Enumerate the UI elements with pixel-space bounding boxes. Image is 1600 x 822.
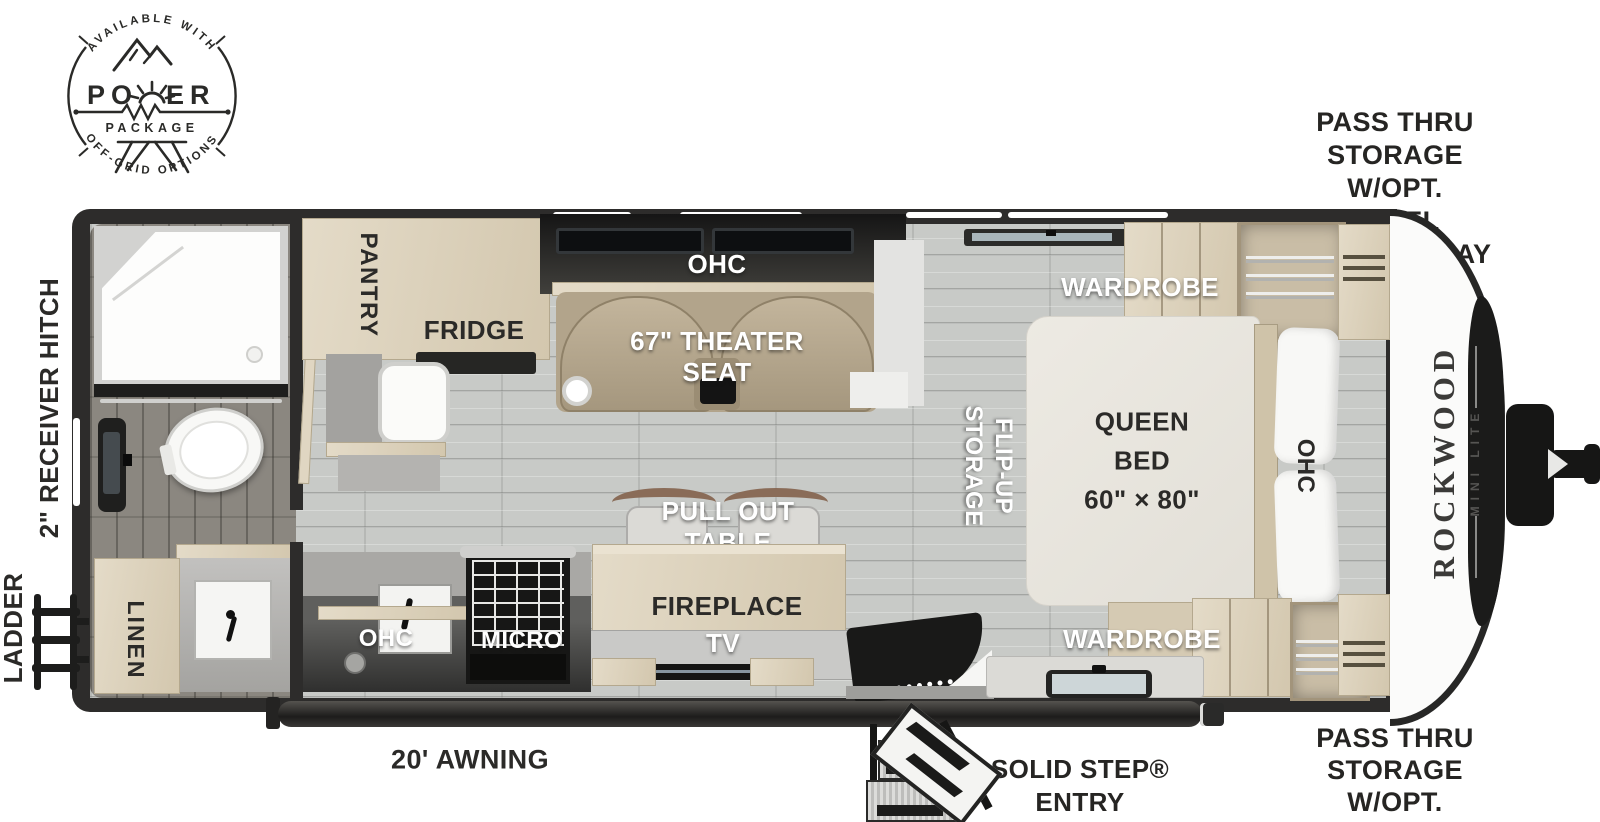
stove-handle (460, 546, 576, 558)
awning-label: 20' AWNING (391, 744, 549, 775)
power-package-badge: AVAILABLE WITH OFF-GRID OPTIONS PO ER PA… (52, 2, 252, 194)
closet-rod (1246, 292, 1334, 295)
note-line: STORAGE W/OPT. (1293, 754, 1498, 818)
queen-bed-label: QUEEN BED 60" × 80" (1084, 403, 1200, 520)
note-line: ENTRY (991, 786, 1169, 819)
tablet (1046, 670, 1152, 698)
bed-ohc-label: OHC (1291, 439, 1319, 494)
tablet-handle (1092, 665, 1106, 673)
door-sill (846, 686, 994, 699)
label-line: PULL OUT (662, 496, 795, 527)
pass-thru-compartment (1338, 224, 1390, 340)
note-line: PASS THRU (1293, 722, 1498, 754)
storage-slats (1343, 637, 1385, 667)
slideout-window (556, 228, 704, 254)
pass-thru-compartment (1338, 594, 1390, 696)
badge-arc-bottom-text: OFF-GRID OPTIONS (83, 132, 221, 177)
ladder-label: LADDER (0, 573, 29, 684)
tv-label: TV (706, 629, 740, 659)
bath-shelf (94, 384, 288, 397)
pantry-label: PANTRY (354, 233, 382, 338)
linen-label: LINEN (123, 601, 149, 680)
ladder-rung (32, 664, 80, 672)
label-line: STORAGE (958, 405, 988, 526)
storage-slats (1343, 251, 1385, 281)
label-line: BED (1084, 442, 1200, 481)
badge-arc-top-text: AVAILABLE WITH (85, 13, 218, 54)
tablet-screen (1052, 674, 1146, 694)
shower-drain (246, 346, 263, 363)
medicine-cabinet (98, 418, 126, 512)
propane-cover (1506, 404, 1554, 526)
bedroom-skylight (964, 229, 1150, 246)
toilet-seat (174, 414, 255, 485)
galley-base (326, 354, 382, 442)
galley-basin (378, 362, 450, 444)
window (73, 418, 80, 506)
label-line: SEAT (630, 357, 804, 388)
table-stowed-edge (593, 545, 845, 554)
ladder-mount (77, 618, 89, 625)
closet-rod (1246, 256, 1334, 259)
mirror-glass (103, 432, 120, 494)
theater-ohc-label: OHC (688, 250, 747, 280)
window (1008, 212, 1168, 218)
label-line: FLIP-UP (988, 405, 1018, 526)
partition-wall (290, 542, 303, 698)
note-line: STEEL SLIDING TRAY (1293, 818, 1498, 822)
towel-rail (100, 399, 282, 403)
fridge-label: FRIDGE (424, 316, 525, 346)
end-table (750, 658, 814, 686)
label-line: QUEEN (1084, 403, 1200, 442)
flip-up-storage-label: FLIP-UP STORAGE (958, 405, 1018, 526)
galley-skirt (338, 455, 440, 491)
note-line: SOLID STEP® (991, 753, 1169, 786)
label-line: 67" THEATER (630, 326, 804, 357)
end-table (592, 658, 656, 686)
awning-endcap (1200, 703, 1224, 726)
awning-bar (278, 701, 1202, 727)
wardrobe-bottom-label: WARDROBE (1063, 625, 1221, 655)
brand-flourish (1475, 346, 1477, 408)
label-line: 60" × 80" (1084, 481, 1200, 520)
kitchen-ohc-label: OHC (359, 625, 414, 653)
skylight-latch (1046, 230, 1056, 236)
note-line: PASS THRU (1293, 106, 1498, 139)
floorplan-diagram: AVAILABLE WITH OFF-GRID OPTIONS PO ER PA… (0, 0, 1600, 822)
sink-knob (344, 652, 366, 674)
cabinet-latch (123, 454, 132, 466)
pass-thru-note-bottom: PASS THRU STORAGE W/OPT. STEEL SLIDING T… (1293, 722, 1498, 822)
note-line: STORAGE W/OPT. (1293, 139, 1498, 205)
fireplace-label: FIREPLACE (652, 592, 803, 622)
brand-model: MINI LITE (1469, 408, 1483, 517)
stove-base (470, 654, 566, 680)
skylight-glass (972, 233, 1112, 241)
receiver-hitch-label: 2" RECEIVER HITCH (35, 278, 65, 538)
mountain-icon (114, 40, 171, 70)
ladder-icon (28, 594, 86, 690)
theater-seat-label: 67" THEATER SEAT (630, 326, 804, 388)
solid-step-entry-label: SOLID STEP® ENTRY (991, 753, 1169, 819)
ladder-rung (32, 608, 80, 616)
brand-make: ROCKWOOD (1426, 345, 1462, 580)
brand-flourish (1475, 516, 1477, 578)
cupholder (562, 376, 592, 406)
wardrobe-top-label: WARDROBE (1061, 273, 1219, 303)
counter-wood-ledge (318, 606, 468, 620)
window (906, 212, 1002, 218)
badge-word2: PACKAGE (105, 121, 198, 135)
ladder-mount (77, 656, 89, 663)
micro-label: MICRO (481, 627, 563, 655)
closet-rod (1246, 274, 1334, 277)
step-grip (877, 805, 943, 816)
ladder-rung (32, 636, 80, 644)
hitch-ball-latch (1584, 444, 1600, 484)
stove-icon (466, 552, 570, 684)
flip-up-storage-bench (850, 372, 908, 408)
bed-rail (1254, 324, 1278, 620)
